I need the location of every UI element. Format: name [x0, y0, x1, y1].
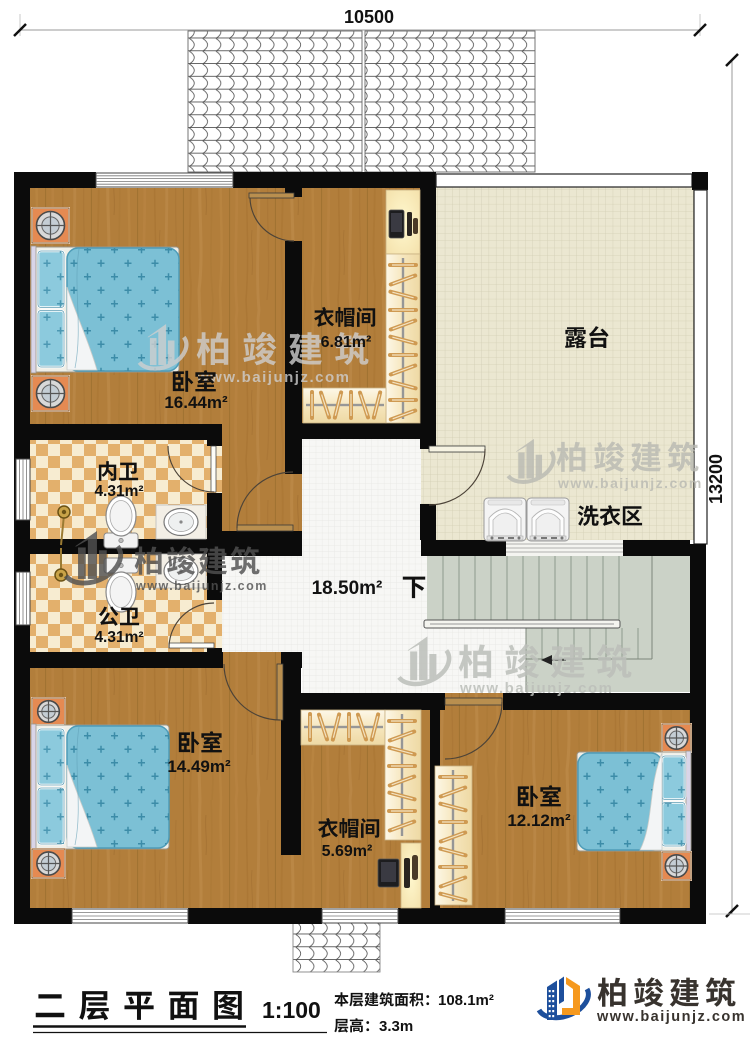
svg-text:12.12m²: 12.12m² — [507, 811, 571, 830]
svg-text:www.baijunjz.com: www.baijunjz.com — [459, 680, 613, 697]
svg-text:柏竣建筑: 柏竣建筑 — [458, 634, 642, 686]
svg-text:本层建筑面积：: 本层建筑面积： — [334, 989, 439, 1010]
svg-text:13200: 13200 — [706, 454, 726, 504]
svg-text:衣帽间: 衣帽间 — [318, 813, 381, 843]
svg-text:二层平面图: 二层平面图 — [34, 981, 257, 1027]
svg-text:www.baijunjz.com: www.baijunjz.com — [196, 369, 350, 386]
svg-text:柏竣建筑: 柏竣建筑 — [597, 968, 741, 1013]
svg-text:6.81m²: 6.81m² — [321, 334, 372, 351]
svg-text:层高：3.3m: 层高：3.3m — [334, 1015, 413, 1036]
svg-text:内卫: 内卫 — [97, 456, 139, 486]
svg-text:4.31m²: 4.31m² — [94, 483, 143, 500]
svg-text:衣帽间: 衣帽间 — [314, 302, 377, 332]
svg-text:卧室: 卧室 — [171, 363, 217, 397]
svg-text:卧室: 卧室 — [516, 778, 562, 812]
svg-text:洗衣区: 洗衣区 — [577, 499, 643, 531]
svg-text:10500: 10500 — [344, 7, 394, 27]
svg-text:卧室: 卧室 — [177, 724, 223, 758]
svg-text:露台: 露台 — [564, 319, 610, 353]
svg-text:公卫: 公卫 — [98, 601, 140, 631]
svg-text:4.31m²: 4.31m² — [94, 629, 143, 646]
svg-text:www.baijunjz.com: www.baijunjz.com — [557, 475, 703, 491]
svg-text:柏竣建筑: 柏竣建筑 — [134, 537, 262, 581]
svg-text:108.1m²: 108.1m² — [438, 992, 494, 1009]
svg-text:下: 下 — [401, 568, 426, 604]
svg-text:柏竣建筑: 柏竣建筑 — [556, 433, 704, 479]
svg-text:16.44m²: 16.44m² — [164, 393, 228, 412]
svg-text:5.69m²: 5.69m² — [322, 843, 373, 860]
svg-text:www.baijunjz.com: www.baijunjz.com — [596, 1009, 746, 1025]
svg-text:18.50m²: 18.50m² — [312, 578, 383, 599]
svg-text:1:100: 1:100 — [262, 997, 321, 1023]
svg-text:www.baijunjz.com: www.baijunjz.com — [135, 579, 268, 593]
svg-text:14.49m²: 14.49m² — [167, 757, 231, 776]
